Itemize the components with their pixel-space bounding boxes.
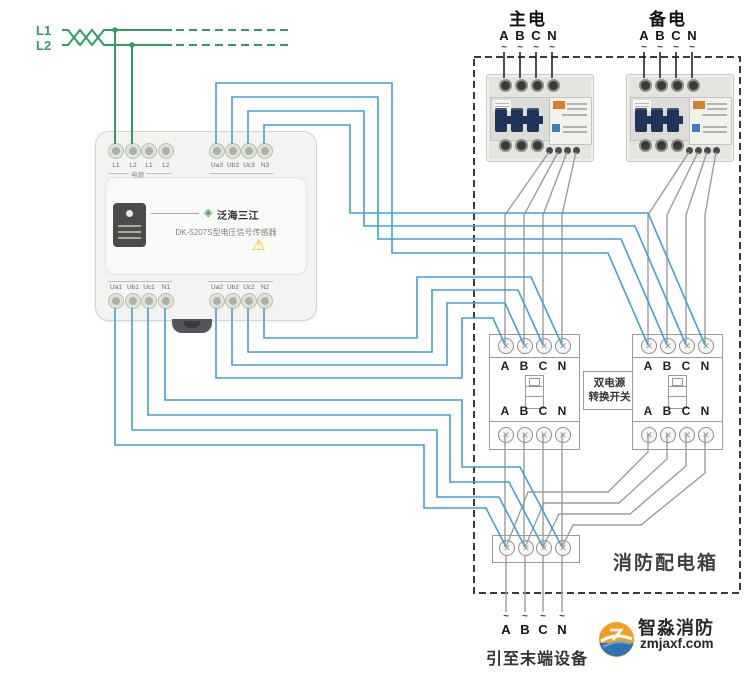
phase-label: N [684,28,700,43]
sensor-model: DK-5207S型电压信号传感器 [146,227,306,238]
screw-terminal: ✕ [517,338,533,354]
screw-terminal: ✕ [555,427,571,443]
terminal-l1b [141,143,157,159]
phase-label: C [535,404,551,418]
transfer-switch-label-line2: 转换开关 [589,391,631,405]
wire-backup-breaker-c [686,152,707,345]
phase-label: B [652,28,668,43]
transfer-switch-label: 双电源 转换开关 [583,371,636,410]
circuit-breaker-backup [626,74,734,162]
screw-terminal: ✕ [555,338,571,354]
terminal-uc1 [141,293,157,309]
phase-label: A [498,622,514,637]
breaker-screw [515,79,528,92]
circuit-breaker-main [486,74,594,162]
breaker-test-button [552,124,560,132]
screw-terminal: ✕ [517,427,533,443]
ac-tilde: ~ [636,43,652,53]
phase-label: B [659,404,675,418]
terminal-n3 [257,143,273,159]
junction-dot [129,42,135,48]
wire-main-breaker-c [543,152,567,345]
ua2-group-bracket [208,281,273,282]
phase-label: B [516,404,532,418]
ua3-group-bracket [209,173,273,174]
screw-terminal: ✕ [660,427,676,443]
wire-backup-out-a [506,434,648,547]
breaker-screw [671,79,684,92]
ac-tilde: ~ [668,43,684,53]
breaker-out-terminal [695,147,702,154]
terminal-n1 [158,293,174,309]
screw-terminal: ✕ [698,338,714,354]
breaker-out-terminal [704,147,711,154]
wire-l1-twist [62,30,110,45]
breaker-out-terminal [555,147,562,154]
breaker-screw [687,79,700,92]
main-supply-label: 主电 [504,5,552,30]
phase-label: C [678,404,694,418]
breaker-screw [515,139,528,152]
wire-main-breaker-a [505,152,549,345]
wire-ub1-output-b [132,308,525,547]
phase-label: B [517,622,533,637]
breaker-handle-bar [495,116,543,124]
wiring-diagram: L1 L2 L1 L2 L1 L2 Ua3 Ub3 Uc3 N3 电源 [0,0,750,675]
incoming-label-l2: L2 [36,38,51,53]
breaker-pole-module [630,97,691,141]
phase-label: A [640,359,656,373]
terminal-label: L2 [156,162,176,169]
phase-label: N [697,359,713,373]
wire-backup-breaker-a [648,152,689,345]
brand-logo-icon: ◈ [204,206,212,219]
terminal-ub2 [225,293,241,309]
screw-terminal: ✕ [679,427,695,443]
terminal-uc2 [241,293,257,309]
phase-label: C [535,622,551,637]
phase-label: N [554,622,570,637]
breaker-screw [655,79,668,92]
power-group-label: 电源 [129,169,146,179]
ac-tilde: ~ [652,43,668,53]
ua1-group-bracket [108,281,172,282]
breaker-screw [531,139,544,152]
phase-label: A [496,28,512,43]
indicator-text-row [118,225,141,227]
phase-label: A [497,404,513,418]
terminal-label: N3 [255,162,275,169]
phase-label: N [544,28,560,43]
indicator-text-row [118,237,141,239]
wire-backup-out-b [525,434,667,547]
breaker-screw [499,79,512,92]
breaker-rcd-module [689,97,732,145]
breaker-rcd-module [549,97,592,145]
terminal-ua2 [209,293,225,309]
breaker-out-terminal [573,147,580,154]
breaker-screw [531,79,544,92]
ac-tilde: ~ [554,612,570,622]
output-caption: 引至末端设备 [486,645,588,669]
distribution-box-title: 消防配电箱 [613,548,718,575]
phase-label: A [497,359,513,373]
terminal-label: N1 [156,284,176,291]
ac-tilde: ~ [517,612,533,622]
screw-terminal: ✕ [660,338,676,354]
breaker-out-terminal [546,147,553,154]
breaker-out-terminal [564,147,571,154]
din-rail-clip [172,319,212,333]
breaker-screw [655,139,668,152]
ac-tilde: ~ [528,43,544,53]
screw-terminal: ✕ [518,540,534,556]
ac-tilde: ~ [684,43,700,53]
breaker-screw [639,79,652,92]
brand-name: 泛海三江 [217,207,259,222]
screw-terminal: ✕ [536,338,552,354]
phase-label: C [528,28,544,43]
screw-terminal: ✕ [555,540,571,556]
breaker-indicator [693,101,705,109]
transfer-switch-label-line1: 双电源 [594,377,626,391]
breaker-screw [671,139,684,152]
terminal-ub1 [125,293,141,309]
ac-tilde: ~ [496,43,512,53]
screw-terminal: ✕ [679,338,695,354]
breaker-handle-bar [635,116,683,124]
breaker-pole-module [490,97,551,141]
phase-label: C [535,359,551,373]
incoming-power-wires [62,30,293,144]
terminal-ua1 [108,293,124,309]
screw-terminal: ✕ [536,427,552,443]
screw-terminal: ✕ [499,540,515,556]
backup-supply-label: 备电 [644,5,692,30]
terminal-l2b [158,143,174,159]
phase-label: N [554,359,570,373]
indicator-panel [113,203,146,247]
breaker-out-terminal [713,147,720,154]
terminal-label: N2 [255,284,275,291]
screw-terminal: ✕ [641,338,657,354]
terminal-ub3 [225,143,241,159]
ac-tilde: ~ [535,612,551,622]
screw-terminal: ✕ [698,427,714,443]
watermark-domain: zmjaxf.com [640,636,714,651]
phase-label: A [636,28,652,43]
terminal-ua3 [209,143,225,159]
breaker-test-button [692,124,700,132]
wire-backup-out-n [562,434,705,547]
screw-terminal: ✕ [536,540,552,556]
phase-label: N [697,404,713,418]
terminal-l1 [108,143,124,159]
breaker-screw [639,139,652,152]
wire-ua1-output-a [115,308,506,547]
indicator-text-row [118,231,141,233]
wire-backup-out-c [543,434,686,547]
breaker-indicator [553,101,565,109]
breaker-screw [499,139,512,152]
phase-label: C [678,359,694,373]
phase-label: B [659,359,675,373]
phase-label: B [516,359,532,373]
wire-l2-twist [62,30,110,45]
ac-tilde: ~ [498,612,514,622]
wire-uc1-output-c [148,308,543,547]
ac-tilde: ~ [512,43,528,53]
phase-label: C [668,28,684,43]
ac-tilde: ~ [544,43,560,53]
indicator-led-icon [126,210,133,217]
phase-label: A [640,404,656,418]
watermark-logo-icon [598,621,635,658]
terminal-n2 [257,293,273,309]
wire-main-breaker-b [524,152,558,345]
terminal-l2 [125,143,141,159]
wire-backup-breaker-b [667,152,698,345]
phase-label: B [512,28,528,43]
wire-backup-breaker-n [705,152,716,345]
breaker-screw [547,79,560,92]
wire-main-breaker-n [562,152,576,345]
brand-divider [151,213,199,214]
breaker-out-terminal [686,147,693,154]
screw-terminal: ✕ [498,427,514,443]
phase-label: N [554,404,570,418]
warning-triangle-icon: ⚠ [252,238,265,253]
screw-terminal: ✕ [498,338,514,354]
voltage-signal-sensor: L1 L2 L1 L2 Ua3 Ub3 Uc3 N3 电源 ◈ 泛海三江 DK-… [95,131,317,321]
terminal-uc3 [241,143,257,159]
screw-terminal: ✕ [641,427,657,443]
incoming-label-l1: L1 [36,23,51,38]
junction-dot [112,27,118,33]
